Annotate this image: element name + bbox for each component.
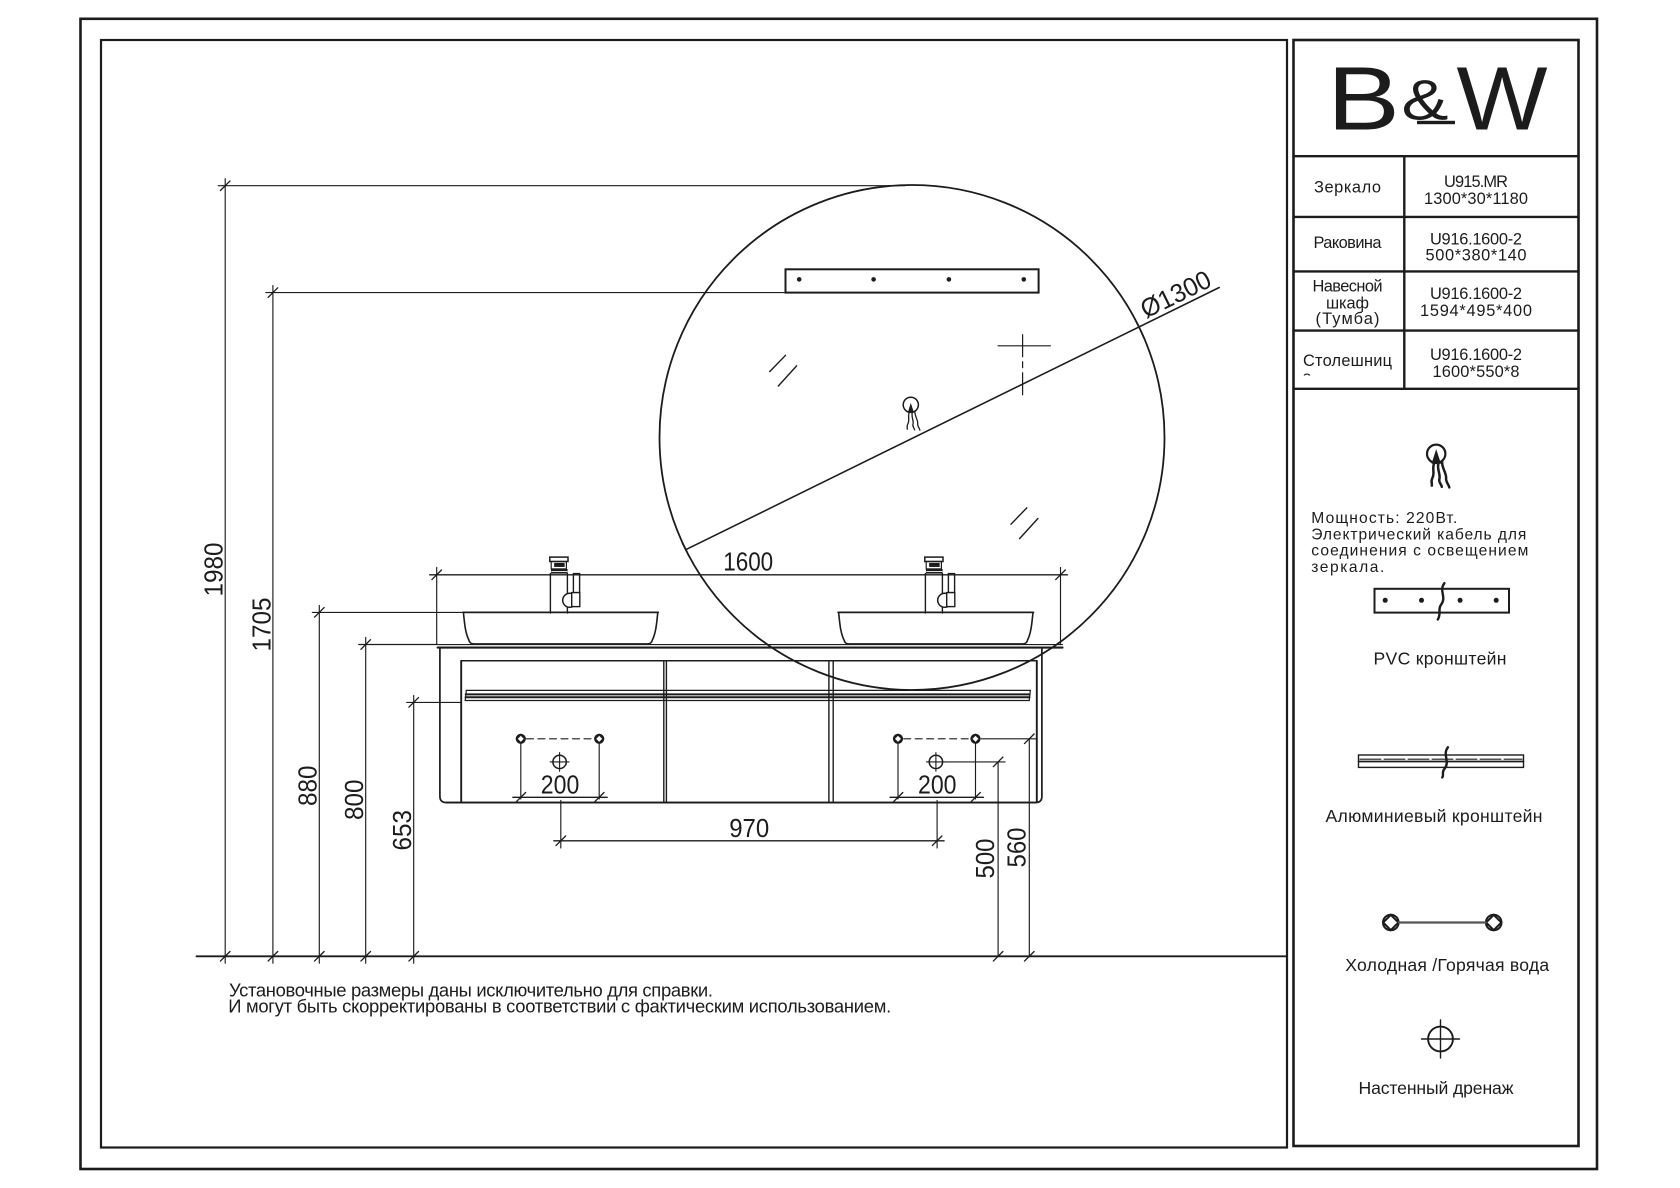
svg-text:U916.1600-2: U916.1600-2 [1430,285,1522,303]
svg-text:500*380*140: 500*380*140 [1426,247,1527,265]
svg-text:И могут быть скорректированы в: И могут быть скорректированы в соответст… [228,996,891,1017]
svg-text:Зеркало: Зеркало [1314,178,1381,196]
svg-text:Ø1300: Ø1300 [1135,264,1216,324]
svg-text:Холодная /Горячая вода: Холодная /Горячая вода [1345,955,1549,975]
svg-text:1705: 1705 [246,598,276,652]
svg-text:B: B [1327,50,1400,150]
svg-text:Настенный дренаж: Настенный дренаж [1359,1078,1514,1098]
svg-text:U916.1600-2: U916.1600-2 [1430,346,1522,364]
svg-text:1600: 1600 [723,546,773,576]
svg-text:880: 880 [293,766,323,807]
svg-text:(Тумба): (Тумба) [1316,310,1380,328]
svg-text:Раковина: Раковина [1314,234,1383,252]
svg-text:Столешниц: Столешниц [1303,352,1393,370]
svg-text:1594*495*400: 1594*495*400 [1420,302,1532,320]
svg-text:Мощность: 220Вт.: Мощность: 220Вт. [1311,510,1457,527]
svg-text:а: а [1303,369,1313,387]
svg-text:1600*550*8: 1600*550*8 [1433,363,1520,381]
svg-text:зеркала.: зеркала. [1311,559,1384,576]
svg-text:970: 970 [729,813,769,843]
svg-text:соединения с освещением: соединения с освещением [1311,543,1528,560]
svg-text:653: 653 [387,810,417,851]
svg-text:W: W [1457,50,1548,150]
svg-text:200: 200 [541,769,580,799]
svg-text:Электрический кабель для: Электрический кабель для [1311,526,1526,543]
svg-text:800: 800 [339,780,369,821]
svg-text:560: 560 [1001,828,1031,868]
svg-text:1980: 1980 [199,543,229,597]
svg-text:1300*30*1180: 1300*30*1180 [1424,190,1528,208]
svg-text:PVC кронштейн: PVC кронштейн [1374,648,1507,668]
svg-text:U915.MR: U915.MR [1444,173,1508,191]
svg-text:Навесной: Навесной [1313,277,1383,295]
svg-text:Алюминиевый кронштейн: Алюминиевый кронштейн [1326,806,1543,826]
svg-text:200: 200 [918,769,957,799]
svg-text:500: 500 [970,839,1000,879]
